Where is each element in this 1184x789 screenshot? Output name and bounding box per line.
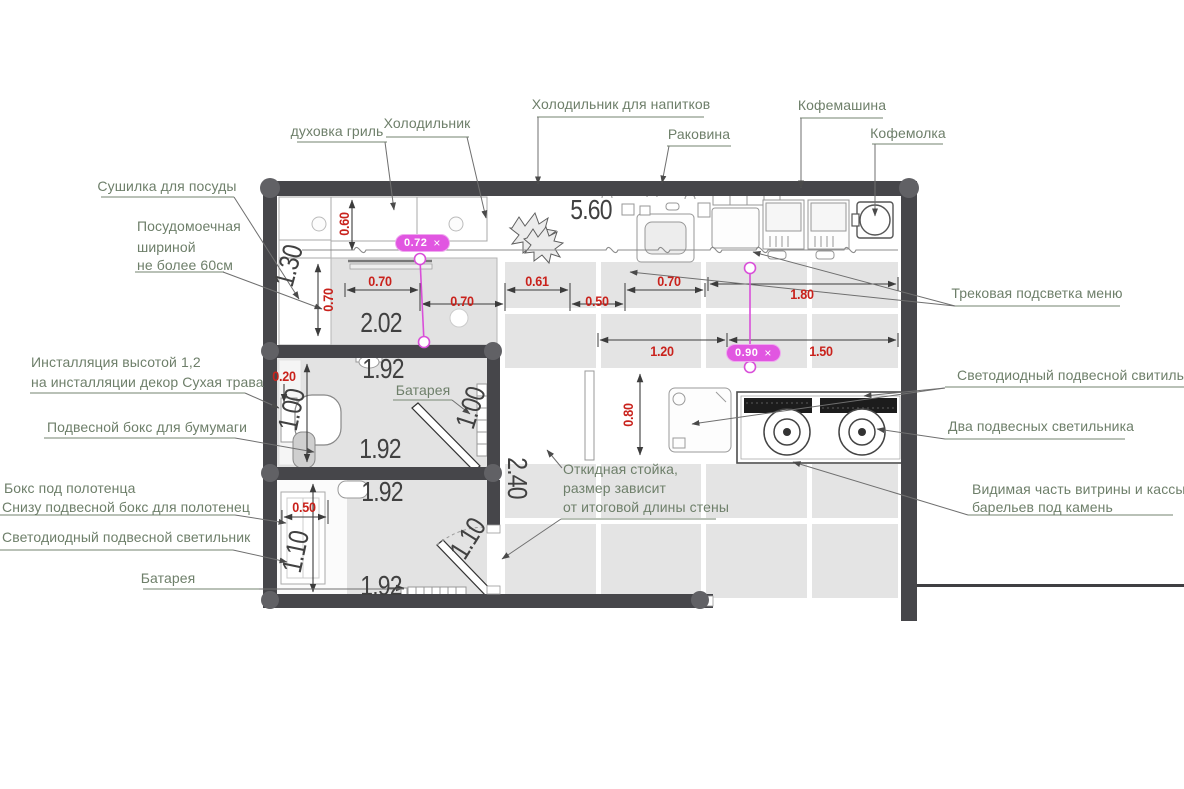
dim-install-offset: 0.20 <box>272 368 295 384</box>
dim-vitrine-length: 1.50 <box>809 343 832 359</box>
dim-track-length: 1.80 <box>790 286 813 302</box>
callout-fold-counter: Откидная стойка, <box>563 461 678 477</box>
callout-dishwasher: не более 60см <box>137 257 233 273</box>
callout-vitrine: барельев под камень <box>972 499 1113 515</box>
dim-seg2: 0.70 <box>450 293 473 309</box>
measure-tag[interactable]: 0.72 × <box>395 234 450 252</box>
callout-oven: духовка гриль <box>291 123 384 139</box>
callout-fridge: Холодильник <box>384 115 471 131</box>
callout-installation: на инсталляции декор Сухая трава <box>31 374 264 390</box>
callout-track-light: Трековая подсветка меню <box>951 285 1122 301</box>
callout-paper-box: Подвесной бокс для бумумаги <box>47 419 247 435</box>
callout-dishwasher: Посудомоечная <box>137 218 241 234</box>
measure-value: 0.90 <box>735 347 758 359</box>
remove-measure-icon[interactable]: × <box>433 237 441 249</box>
measure-tag[interactable]: 0.90 × <box>726 344 781 362</box>
plant-icon <box>510 213 563 263</box>
callout-towel-box: Снизу подвесной бокс для полотенец <box>2 499 250 515</box>
callout-vitrine: Видимая часть витрины и кассы <box>972 481 1184 497</box>
dim-cabinet-depth: 0.60 <box>336 212 352 235</box>
callout-fold-counter: от итоговой длины стены <box>563 499 729 515</box>
dim-shower-width: 0.50 <box>292 499 315 515</box>
dim-bath1-bottom: 1.92 <box>359 433 400 465</box>
dim-register-depth: 0.80 <box>620 403 636 426</box>
measure-value: 0.72 <box>404 237 427 249</box>
dim-seg4: 0.50 <box>585 293 608 309</box>
dim-bath2-top: 1.92 <box>361 476 402 508</box>
callout-battery-bottom: Батарея <box>141 570 196 586</box>
callout-led-light-left: Светодиодный подвесной светильник <box>2 529 250 545</box>
dim-seg1: 0.70 <box>368 273 391 289</box>
dim-seg5: 0.70 <box>657 273 680 289</box>
dim-pass-width: 1.20 <box>650 343 673 359</box>
remove-measure-icon[interactable]: × <box>764 347 772 359</box>
floor-plan-canvas: духовка гриль Холодильник Холодильник дл… <box>0 0 1184 789</box>
dim-hall-depth: 2.40 <box>501 457 533 498</box>
callout-installation: Инсталляция высотой 1,2 <box>31 354 201 370</box>
dim-counter-depth: 0.70 <box>320 288 336 311</box>
callout-drinks-fridge: Холодильник для напитков <box>532 96 711 112</box>
callout-fold-counter: размер зависит <box>563 480 666 496</box>
callout-led-light-right: Светодиодный подвесной свитильник <box>957 367 1184 383</box>
callout-coffee-machine: Кофемашина <box>798 97 886 113</box>
callout-battery-bath: Батарея <box>396 382 451 398</box>
callout-dishwasher: шириной <box>137 239 196 255</box>
callout-coffee-grinder: Кофемолка <box>870 125 946 141</box>
callout-sink: Раковина <box>668 126 730 142</box>
dim-seg3: 0.61 <box>525 273 548 289</box>
callout-dish-dryer: Сушилка для посуды <box>97 178 236 194</box>
dim-bath1-top: 1.92 <box>362 353 403 385</box>
callout-two-lights: Два подвесных светильника <box>948 418 1134 434</box>
floor-plan-drawing <box>0 0 1184 789</box>
dim-bath2-bottom: 1.92 <box>360 570 401 602</box>
dim-kitchen-counter: 2.02 <box>360 307 401 339</box>
callout-towel-box: Бокс под полотенца <box>4 480 136 496</box>
coffee-grinder-icon <box>852 202 893 238</box>
dim-total-width: 5.60 <box>570 194 611 226</box>
